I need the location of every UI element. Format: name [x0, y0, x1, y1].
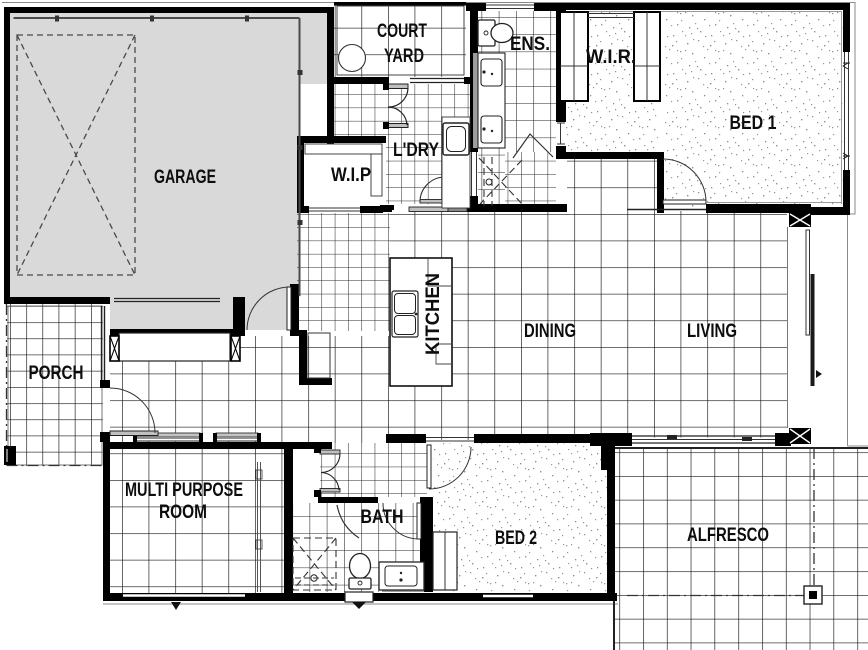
- svg-text:ENS.: ENS.: [510, 34, 550, 55]
- svg-text:DINING: DINING: [524, 321, 576, 342]
- svg-text:MULTI PURPOSE: MULTI PURPOSE: [125, 480, 243, 501]
- svg-text:W.I.R.: W.I.R.: [586, 47, 636, 68]
- svg-text:ALFRESCO: ALFRESCO: [687, 525, 769, 546]
- svg-text:PORCH: PORCH: [29, 363, 84, 384]
- svg-text:COURT: COURT: [377, 21, 427, 42]
- svg-text:L'DRY: L'DRY: [393, 140, 439, 161]
- svg-text:KITCHEN: KITCHEN: [423, 273, 444, 355]
- svg-text:BED 2: BED 2: [495, 528, 537, 549]
- svg-text:GARAGE: GARAGE: [154, 167, 216, 188]
- svg-text:BATH: BATH: [361, 507, 404, 528]
- svg-text:ROOM: ROOM: [159, 502, 207, 523]
- svg-text:W.I.P: W.I.P: [331, 165, 371, 186]
- svg-text:BED 1: BED 1: [730, 113, 777, 134]
- svg-text:YARD: YARD: [384, 46, 424, 67]
- svg-text:LIVING: LIVING: [687, 321, 737, 342]
